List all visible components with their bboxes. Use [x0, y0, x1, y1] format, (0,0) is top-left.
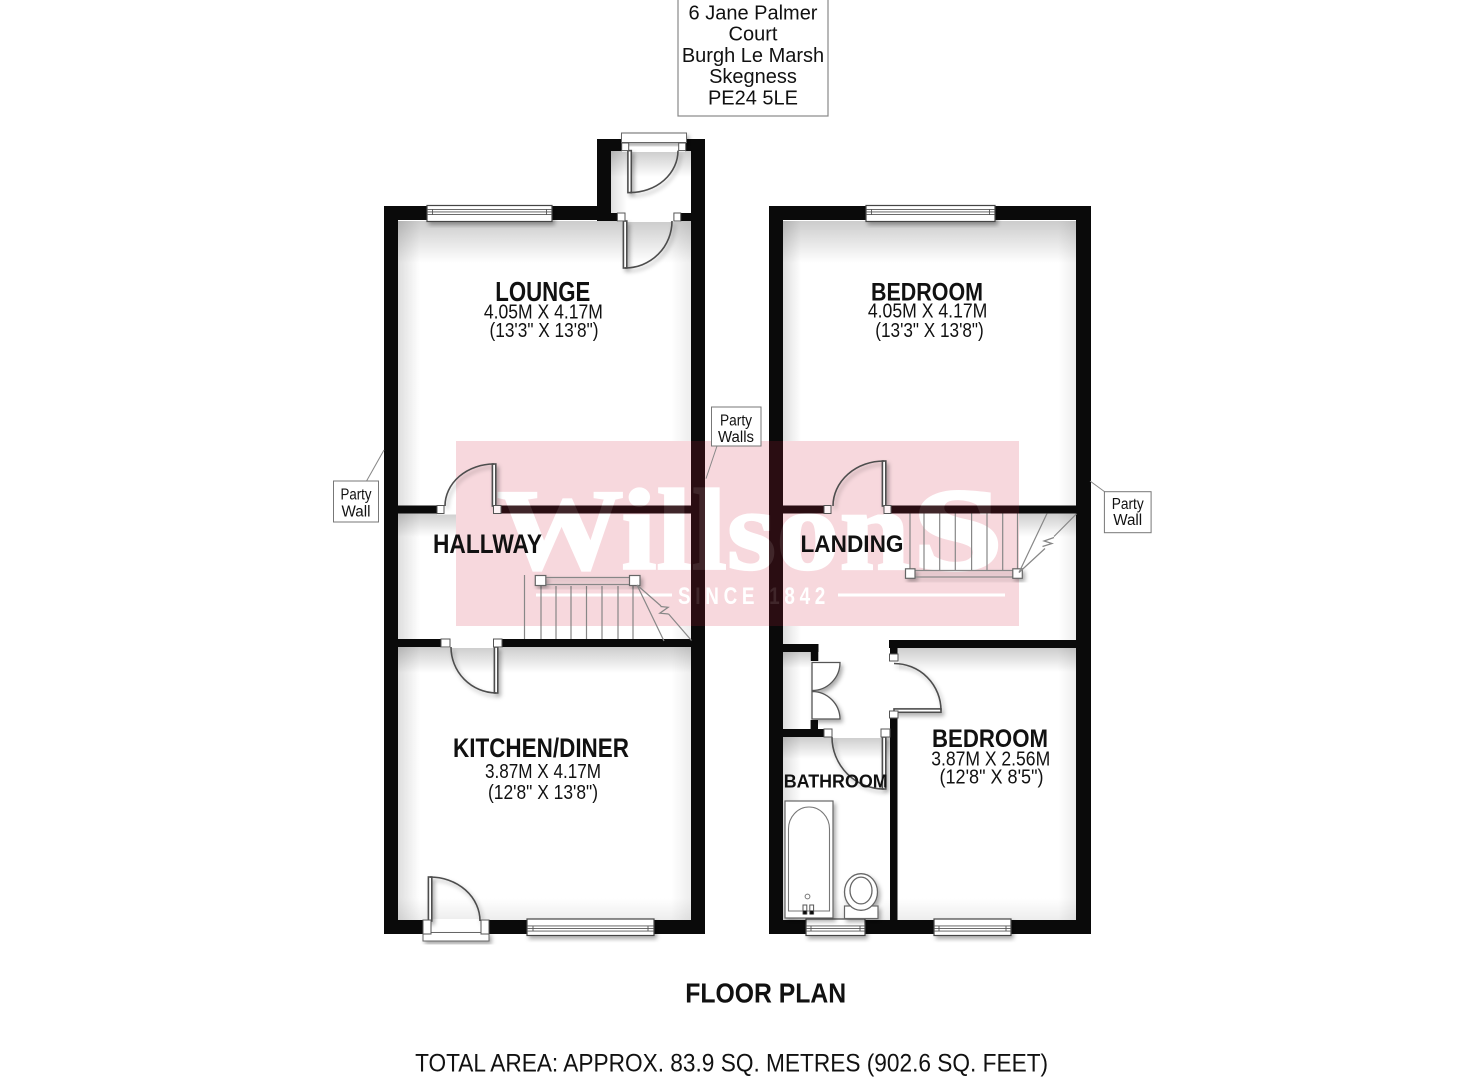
svg-text:Skegness: Skegness — [709, 66, 797, 88]
svg-text:TOTAL AREA: APPROX. 83.9 SQ. M: TOTAL AREA: APPROX. 83.9 SQ. METRES (902… — [415, 1049, 1048, 1077]
svg-text:(12'8" X 8'5"): (12'8" X 8'5") — [940, 767, 1044, 789]
svg-text:Party: Party — [1112, 496, 1144, 513]
svg-text:(12'8" X 13'8"): (12'8" X 13'8") — [488, 782, 598, 804]
svg-text:Burgh Le Marsh: Burgh Le Marsh — [682, 45, 824, 67]
svg-text:(13'3" X 13'8"): (13'3" X 13'8") — [490, 320, 599, 342]
svg-text:3.87M X 4.17M: 3.87M X 4.17M — [485, 761, 601, 783]
svg-text:6 Jane Palmer: 6 Jane Palmer — [689, 2, 818, 24]
svg-text:LANDING: LANDING — [801, 531, 904, 558]
svg-text:KITCHEN/DINER: KITCHEN/DINER — [453, 733, 629, 763]
svg-text:BATHROOM: BATHROOM — [784, 771, 888, 791]
svg-text:Walls: Walls — [718, 429, 754, 446]
svg-text:FLOOR PLAN: FLOOR PLAN — [685, 977, 846, 1008]
svg-text:(13'3" X 13'8"): (13'3" X 13'8") — [875, 320, 984, 342]
svg-text:Wall: Wall — [342, 504, 371, 521]
svg-text:HALLWAY: HALLWAY — [433, 529, 542, 559]
svg-text:Court: Court — [729, 24, 778, 46]
svg-text:Party: Party — [341, 487, 372, 504]
svg-text:Party: Party — [720, 413, 752, 430]
svg-text:PE24 5LE: PE24 5LE — [708, 87, 798, 109]
svg-text:Wall: Wall — [1113, 512, 1142, 529]
